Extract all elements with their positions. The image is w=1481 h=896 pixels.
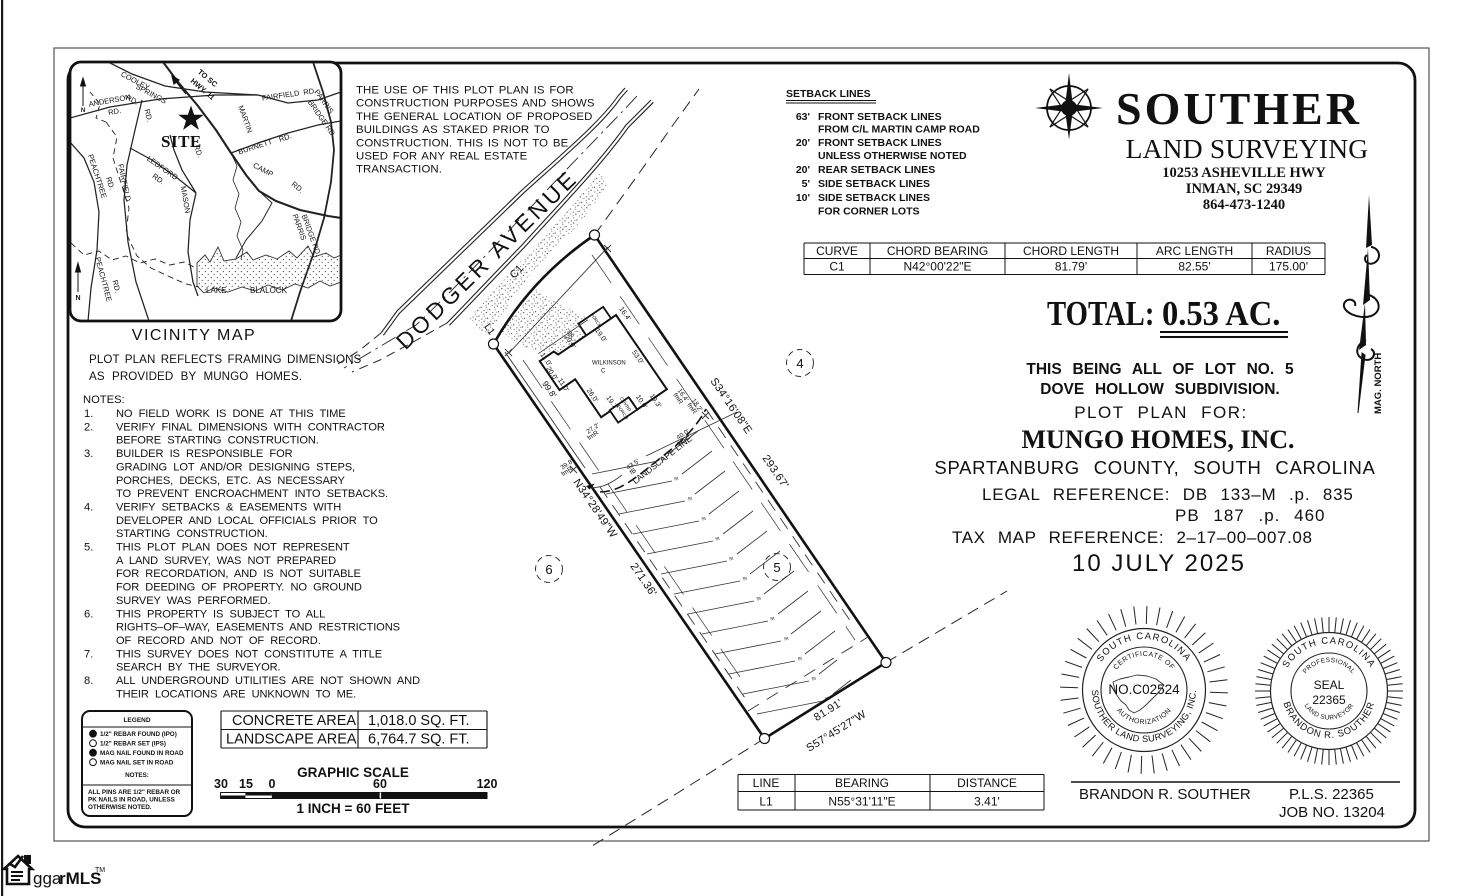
svg-text:CONSTRUCTION PURPOSES AND S: CONSTRUCTION PURPOSES AND SHOWS (356, 98, 595, 110)
svg-text:2.: 2. (84, 421, 93, 433)
svg-text:LEGAL REFERENCE: DB 133–M: LEGAL REFERENCE: DB 133–M .p. 835 (982, 485, 1354, 504)
svg-text:ARC LENGTH: ARC LENGTH (1156, 244, 1233, 258)
svg-text:VERIFY SETBACKS & EASEMENTS: VERIFY SETBACKS & EASEMENTS WITH (116, 502, 341, 514)
svg-text:P.L.S. 22365: P.L.S. 22365 (1289, 786, 1374, 803)
svg-text:RIGHTS–OF–WAY, EASEMENTS AND: RIGHTS–OF–WAY, EASEMENTS AND RESTRICTION… (116, 622, 400, 634)
svg-text:FRONT SETBACK LINES: FRONT SETBACK LINES (818, 137, 942, 149)
svg-text:SEAL: SEAL (1314, 678, 1345, 692)
svg-text:N55°31'11"E: N55°31'11"E (828, 795, 895, 809)
svg-text:TO PREVENT ENCROACHMENT INT: TO PREVENT ENCROACHMENT INTO SETBACKS. (116, 488, 388, 500)
svg-text:TAX MAP REFERENCE: 2–17–00–: TAX MAP REFERENCE: 2–17–00–007.08 (952, 528, 1313, 547)
svg-text:FRONT SETBACK LINES: FRONT SETBACK LINES (818, 111, 942, 123)
svg-text:MAG. NORTH: MAG. NORTH (1373, 353, 1384, 414)
svg-text:864-473-1240: 864-473-1240 (1203, 197, 1285, 213)
svg-text:LAKE: LAKE (206, 286, 226, 295)
svg-text:SETBACK LINES: SETBACK LINES (786, 88, 871, 100)
svg-text:N: N (81, 108, 85, 114)
svg-text:CHORD BEARING: CHORD BEARING (887, 244, 988, 258)
svg-text:TRANSACTION.: TRANSACTION. (356, 164, 442, 176)
svg-text:22365: 22365 (1312, 693, 1346, 707)
svg-text:82.55': 82.55' (1178, 260, 1210, 274)
svg-text:INMAN, SC 29349: INMAN, SC 29349 (1186, 181, 1302, 197)
svg-text:3.: 3. (84, 448, 93, 460)
svg-text:C1: C1 (829, 260, 845, 274)
svg-text:10253 ASHEVILLE HWY: 10253 ASHEVILLE HWY (1162, 165, 1326, 181)
svg-text:1,018.0 SQ. FT.: 1,018.0 SQ. FT. (368, 713, 470, 729)
svg-text:LINE: LINE (753, 776, 780, 790)
svg-text:60: 60 (373, 777, 387, 791)
svg-text:5: 5 (773, 560, 780, 575)
svg-text:TOTAL:: TOTAL: (1047, 293, 1154, 332)
svg-text:PK NAILS IN ROAD, UNLESS: PK NAILS IN ROAD, UNLESS (88, 797, 175, 804)
svg-text:3.41': 3.41' (974, 795, 1000, 809)
svg-text:NOTES:: NOTES: (83, 394, 125, 406)
svg-text:N: N (75, 295, 80, 302)
svg-text:NOTES:: NOTES: (125, 772, 149, 779)
svg-text:AS PROVIDED BY MUNGO HOMES: AS PROVIDED BY MUNGO HOMES. (89, 370, 302, 383)
svg-text:VICINITY MAP: VICINITY MAP (132, 327, 256, 344)
svg-text:BEARING: BEARING (835, 776, 889, 790)
svg-text:FOR CORNER LOTS: FOR CORNER LOTS (818, 206, 920, 218)
svg-text:175.00': 175.00' (1269, 260, 1308, 274)
svg-text:7.: 7. (84, 648, 93, 660)
svg-text:PB 187 .p. 460: PB 187 .p. 460 (1175, 506, 1325, 525)
svg-text:MAG NAIL FOUND IN ROAD: MAG NAIL FOUND IN ROAD (100, 750, 184, 757)
svg-text:MUNGO HOMES, INC.: MUNGO HOMES, INC. (1022, 425, 1295, 454)
svg-text:LAND SURVEYING: LAND SURVEYING (1126, 133, 1369, 164)
svg-text:THEIR LOCATIONS ARE UNKNOWN: THEIR LOCATIONS ARE UNKNOWN TO ME. (116, 688, 356, 700)
svg-text:WILKINSON: WILKINSON (592, 361, 626, 367)
svg-text:6,764.7 SQ. FT.: 6,764.7 SQ. FT. (368, 732, 470, 748)
svg-text:GRAPHIC SCALE: GRAPHIC SCALE (297, 765, 409, 780)
svg-text:SEARCH BY THE SURVEYOR.: SEARCH BY THE SURVEYOR. (116, 662, 281, 674)
svg-text:RADIUS: RADIUS (1266, 244, 1311, 258)
svg-text:STARTING CONSTRUCTION.: STARTING CONSTRUCTION. (116, 528, 268, 540)
svg-text:CHORD LENGTH: CHORD LENGTH (1023, 244, 1119, 258)
svg-text:ALL UNDERGROUND UTILITIES A: ALL UNDERGROUND UTILITIES ARE NOT SHOWN … (116, 675, 420, 687)
svg-text:OF RECORD AND NOT OF RECO: OF RECORD AND NOT OF RECORD. (116, 635, 321, 647)
svg-text:C: C (601, 368, 606, 374)
svg-text:GRADING LOT AND/OR DESIGNIN: GRADING LOT AND/OR DESIGNING STEPS, (116, 461, 355, 473)
svg-text:15: 15 (239, 777, 253, 791)
svg-text:gga: gga (33, 869, 62, 888)
svg-text:BUILDER IS RESPONSIBLE FOR: BUILDER IS RESPONSIBLE FOR (116, 448, 293, 460)
svg-text:63': 63' (796, 111, 810, 123)
svg-text:DISTANCE: DISTANCE (957, 776, 1017, 790)
svg-text:1 INCH = 60 FEET: 1 INCH = 60 FEET (297, 801, 411, 816)
svg-text:0: 0 (269, 777, 276, 791)
svg-text:JOB NO. 13204: JOB NO. 13204 (1279, 804, 1385, 821)
svg-text:81.79': 81.79' (1055, 260, 1087, 274)
svg-text:THIS PLOT PLAN DOES NOT R: THIS PLOT PLAN DOES NOT REPRESENT (116, 542, 350, 554)
svg-text:BLALOCK: BLALOCK (250, 286, 288, 295)
svg-text:SURVEY WAS PERFORMED.: SURVEY WAS PERFORMED. (116, 595, 271, 607)
svg-text:NO FIELD WORK IS DONE AT: NO FIELD WORK IS DONE AT THIS TIME (116, 408, 346, 420)
svg-text:UNLESS OTHERWISE NOTED: UNLESS OTHERWISE NOTED (818, 150, 967, 162)
svg-text:SPARTANBURG COUNTY, SOUTH C: SPARTANBURG COUNTY, SOUTH CAROLINA (934, 457, 1375, 478)
svg-text:6: 6 (545, 562, 552, 577)
svg-text:ALL PINS ARE 1/2" REBAR OR: ALL PINS ARE 1/2" REBAR OR (88, 789, 181, 796)
svg-text:CONSTRUCTION. THIS IS NOT: CONSTRUCTION. THIS IS NOT TO BE (356, 137, 569, 149)
svg-text:BEFORE STARTING CONSTRUCTION: BEFORE STARTING CONSTRUCTION. (116, 435, 319, 447)
svg-text:FROM C/L MARTIN CAMP ROAD: FROM C/L MARTIN CAMP ROAD (818, 124, 980, 136)
svg-text:DEVELOPER AND LOCAL OFFICIA: DEVELOPER AND LOCAL OFFICIALS PRIOR TO (116, 515, 378, 527)
svg-text:LEGEND: LEGEND (123, 717, 150, 724)
svg-text:USED FOR ANY REAL ESTATE: USED FOR ANY REAL ESTATE (356, 151, 528, 163)
svg-text:5.: 5. (84, 542, 93, 554)
svg-text:1/2" REBAR FOUND (IPO): 1/2" REBAR FOUND (IPO) (100, 731, 177, 738)
svg-text:LANDSCAPE AREA: LANDSCAPE AREA (226, 732, 357, 748)
svg-text:6.: 6. (84, 608, 93, 620)
svg-text:BRANDON R. SOUTHER: BRANDON R. SOUTHER (1079, 786, 1251, 803)
svg-text:4.: 4. (84, 502, 93, 514)
svg-text:5': 5' (802, 178, 810, 190)
svg-text:SOUTHER: SOUTHER (1116, 83, 1362, 134)
svg-text:THIS SURVEY DOES NOT CONST: THIS SURVEY DOES NOT CONSTITUTE A TITLE (116, 648, 382, 660)
svg-text:THE GENERAL LOCATION OF PR: THE GENERAL LOCATION OF PROPOSED (356, 111, 592, 123)
svg-text:L1: L1 (759, 795, 773, 809)
svg-text:CURVE: CURVE (816, 244, 858, 258)
svg-text:120: 120 (477, 777, 498, 791)
svg-text:20': 20' (796, 137, 810, 149)
svg-text:THIS BEING ALL OF LOT NO.: THIS BEING ALL OF LOT NO. 5 (1026, 361, 1294, 378)
svg-text:BUILDINGS AS STAKED PRIOR: BUILDINGS AS STAKED PRIOR TO (356, 124, 550, 136)
svg-text:REAR SETBACK LINES: REAR SETBACK LINES (818, 164, 935, 176)
svg-text:MAG NAIL SET IN ROAD: MAG NAIL SET IN ROAD (100, 760, 174, 767)
svg-text:PLOT PLAN FOR:: PLOT PLAN FOR: (1074, 403, 1248, 422)
svg-text:8.: 8. (84, 675, 93, 687)
svg-text:A LAND SURVEY, WAS NOT PR: A LAND SURVEY, WAS NOT PREPARED (116, 555, 336, 567)
svg-text:FOR RECORDATION, AND IS NO: FOR RECORDATION, AND IS NOT SUITABLE (116, 568, 361, 580)
svg-text:THIS PROPERTY IS SUBJECT T: THIS PROPERTY IS SUBJECT TO ALL (116, 608, 325, 620)
svg-text:SIDE SETBACK LINES: SIDE SETBACK LINES (818, 178, 930, 190)
svg-text:20': 20' (796, 164, 810, 176)
svg-text:1.: 1. (84, 408, 93, 420)
svg-text:DOVE HOLLOW SUBDIVISION.: DOVE HOLLOW SUBDIVISION. (1040, 381, 1279, 398)
svg-text:VERIFY FINAL DIMENSIONS WIT: VERIFY FINAL DIMENSIONS WITH CONTRACTOR (116, 421, 385, 433)
svg-text:TM: TM (95, 867, 105, 874)
svg-text:10': 10' (796, 192, 810, 204)
svg-text:4: 4 (796, 356, 803, 371)
svg-text:OTHERWISE NOTED.: OTHERWISE NOTED. (88, 804, 152, 811)
svg-text:N42°00'22"E: N42°00'22"E (903, 260, 971, 274)
svg-text:NO.C02524: NO.C02524 (1108, 682, 1180, 697)
svg-text:0.53 AC.: 0.53 AC. (1162, 295, 1280, 333)
svg-text:CONCRETE AREA: CONCRETE AREA (232, 713, 356, 729)
svg-text:10 JULY 2025: 10 JULY 2025 (1072, 550, 1246, 577)
svg-text:30: 30 (214, 777, 228, 791)
svg-text:FOR DEEDING OF PROPERTY.: FOR DEEDING OF PROPERTY. NO GROUND (116, 582, 362, 594)
svg-text:PLOT PLAN REFLECTS FRAMING: PLOT PLAN REFLECTS FRAMING DIMENSIONS (89, 353, 362, 366)
svg-text:SIDE SETBACK LINES: SIDE SETBACK LINES (818, 192, 930, 204)
svg-text:1/2" REBAR SET (IPS): 1/2" REBAR SET (IPS) (100, 741, 166, 748)
svg-text:THE USE OF THIS PLOT PLAN: THE USE OF THIS PLOT PLAN IS FOR (356, 85, 574, 97)
svg-text:PORCHES, DECKS, ETC. AS NE: PORCHES, DECKS, ETC. AS NECESSARY (116, 475, 345, 487)
